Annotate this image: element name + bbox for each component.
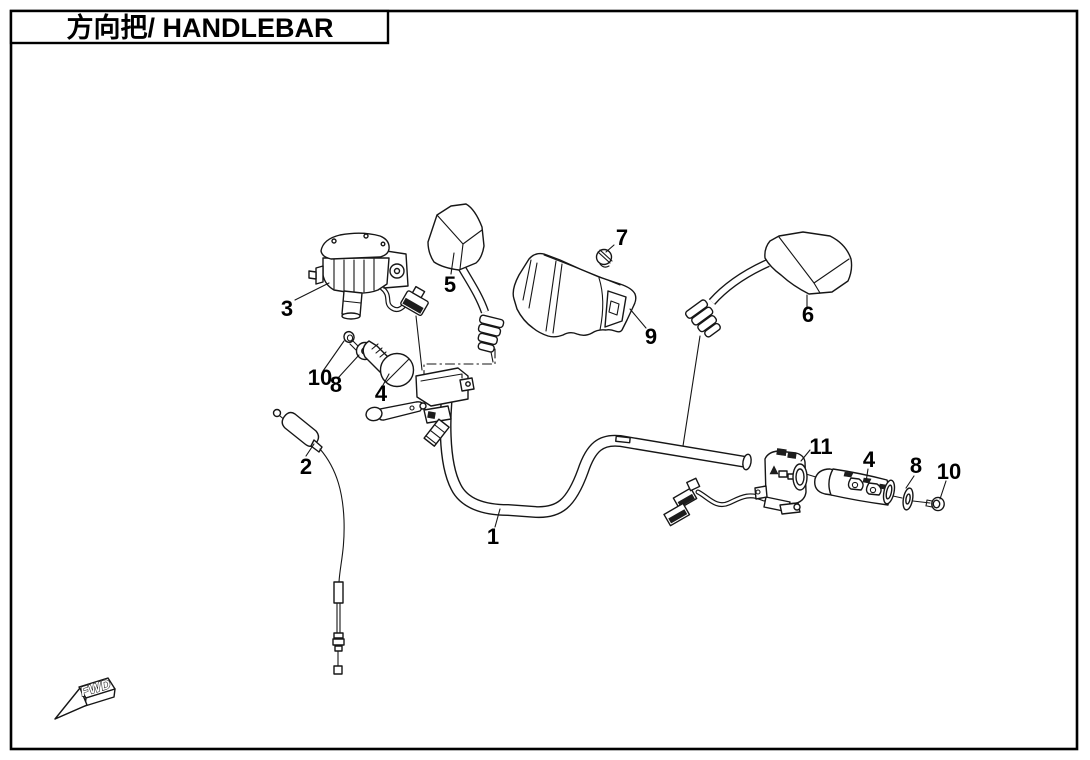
- brake-master-cylinder: [365, 368, 474, 446]
- right-washer: [902, 487, 915, 510]
- throttle-cable: [274, 410, 345, 675]
- callout-right-mirror: 6: [802, 302, 814, 327]
- left-mirror: [428, 204, 504, 362]
- right-mirror: [684, 232, 851, 340]
- callout-handlebar-cover: 9: [645, 324, 657, 349]
- cover-screw: [597, 250, 613, 268]
- parts-catalog-page: 方向把/ HANDLEBAR: [0, 0, 1090, 760]
- handlebar-cover: [513, 254, 636, 337]
- callout-left-grip: 4: [375, 381, 388, 406]
- page-border: [11, 11, 1077, 749]
- fwd-direction-arrow: FWD: [55, 676, 115, 719]
- throttle-housing: [309, 233, 432, 319]
- left-mirror-mount: [473, 315, 505, 354]
- callout-cover-screw: 7: [616, 225, 628, 250]
- callout-right-grip: 4: [863, 447, 876, 472]
- page-title: 方向把/ HANDLEBAR: [67, 12, 334, 43]
- callout-right-bolt: 10: [937, 459, 961, 484]
- callout-right-washer: 8: [910, 453, 922, 478]
- handlebar-exploded-diagram: 方向把/ HANDLEBAR: [0, 0, 1090, 760]
- handlebar-clip: [616, 436, 630, 442]
- callout-throttle-housing: 3: [281, 296, 293, 321]
- switch-connectors: [664, 478, 700, 525]
- callout-left-mirror: 5: [444, 272, 456, 297]
- callout-throttle-cable: 2: [300, 454, 312, 479]
- callout-switch-assembly: 11: [809, 434, 832, 459]
- callout-left-bolt: 10: [308, 365, 332, 390]
- right-mirror-mount: [684, 299, 723, 341]
- left-handle-grip: [363, 341, 413, 387]
- wire-connector: [400, 284, 432, 316]
- callout-handlebar: 1: [487, 524, 499, 549]
- right-bolt: [926, 497, 944, 510]
- handlebar-tube: [442, 374, 752, 512]
- right-handle-grip: [815, 469, 897, 505]
- left-bolt: [342, 330, 359, 350]
